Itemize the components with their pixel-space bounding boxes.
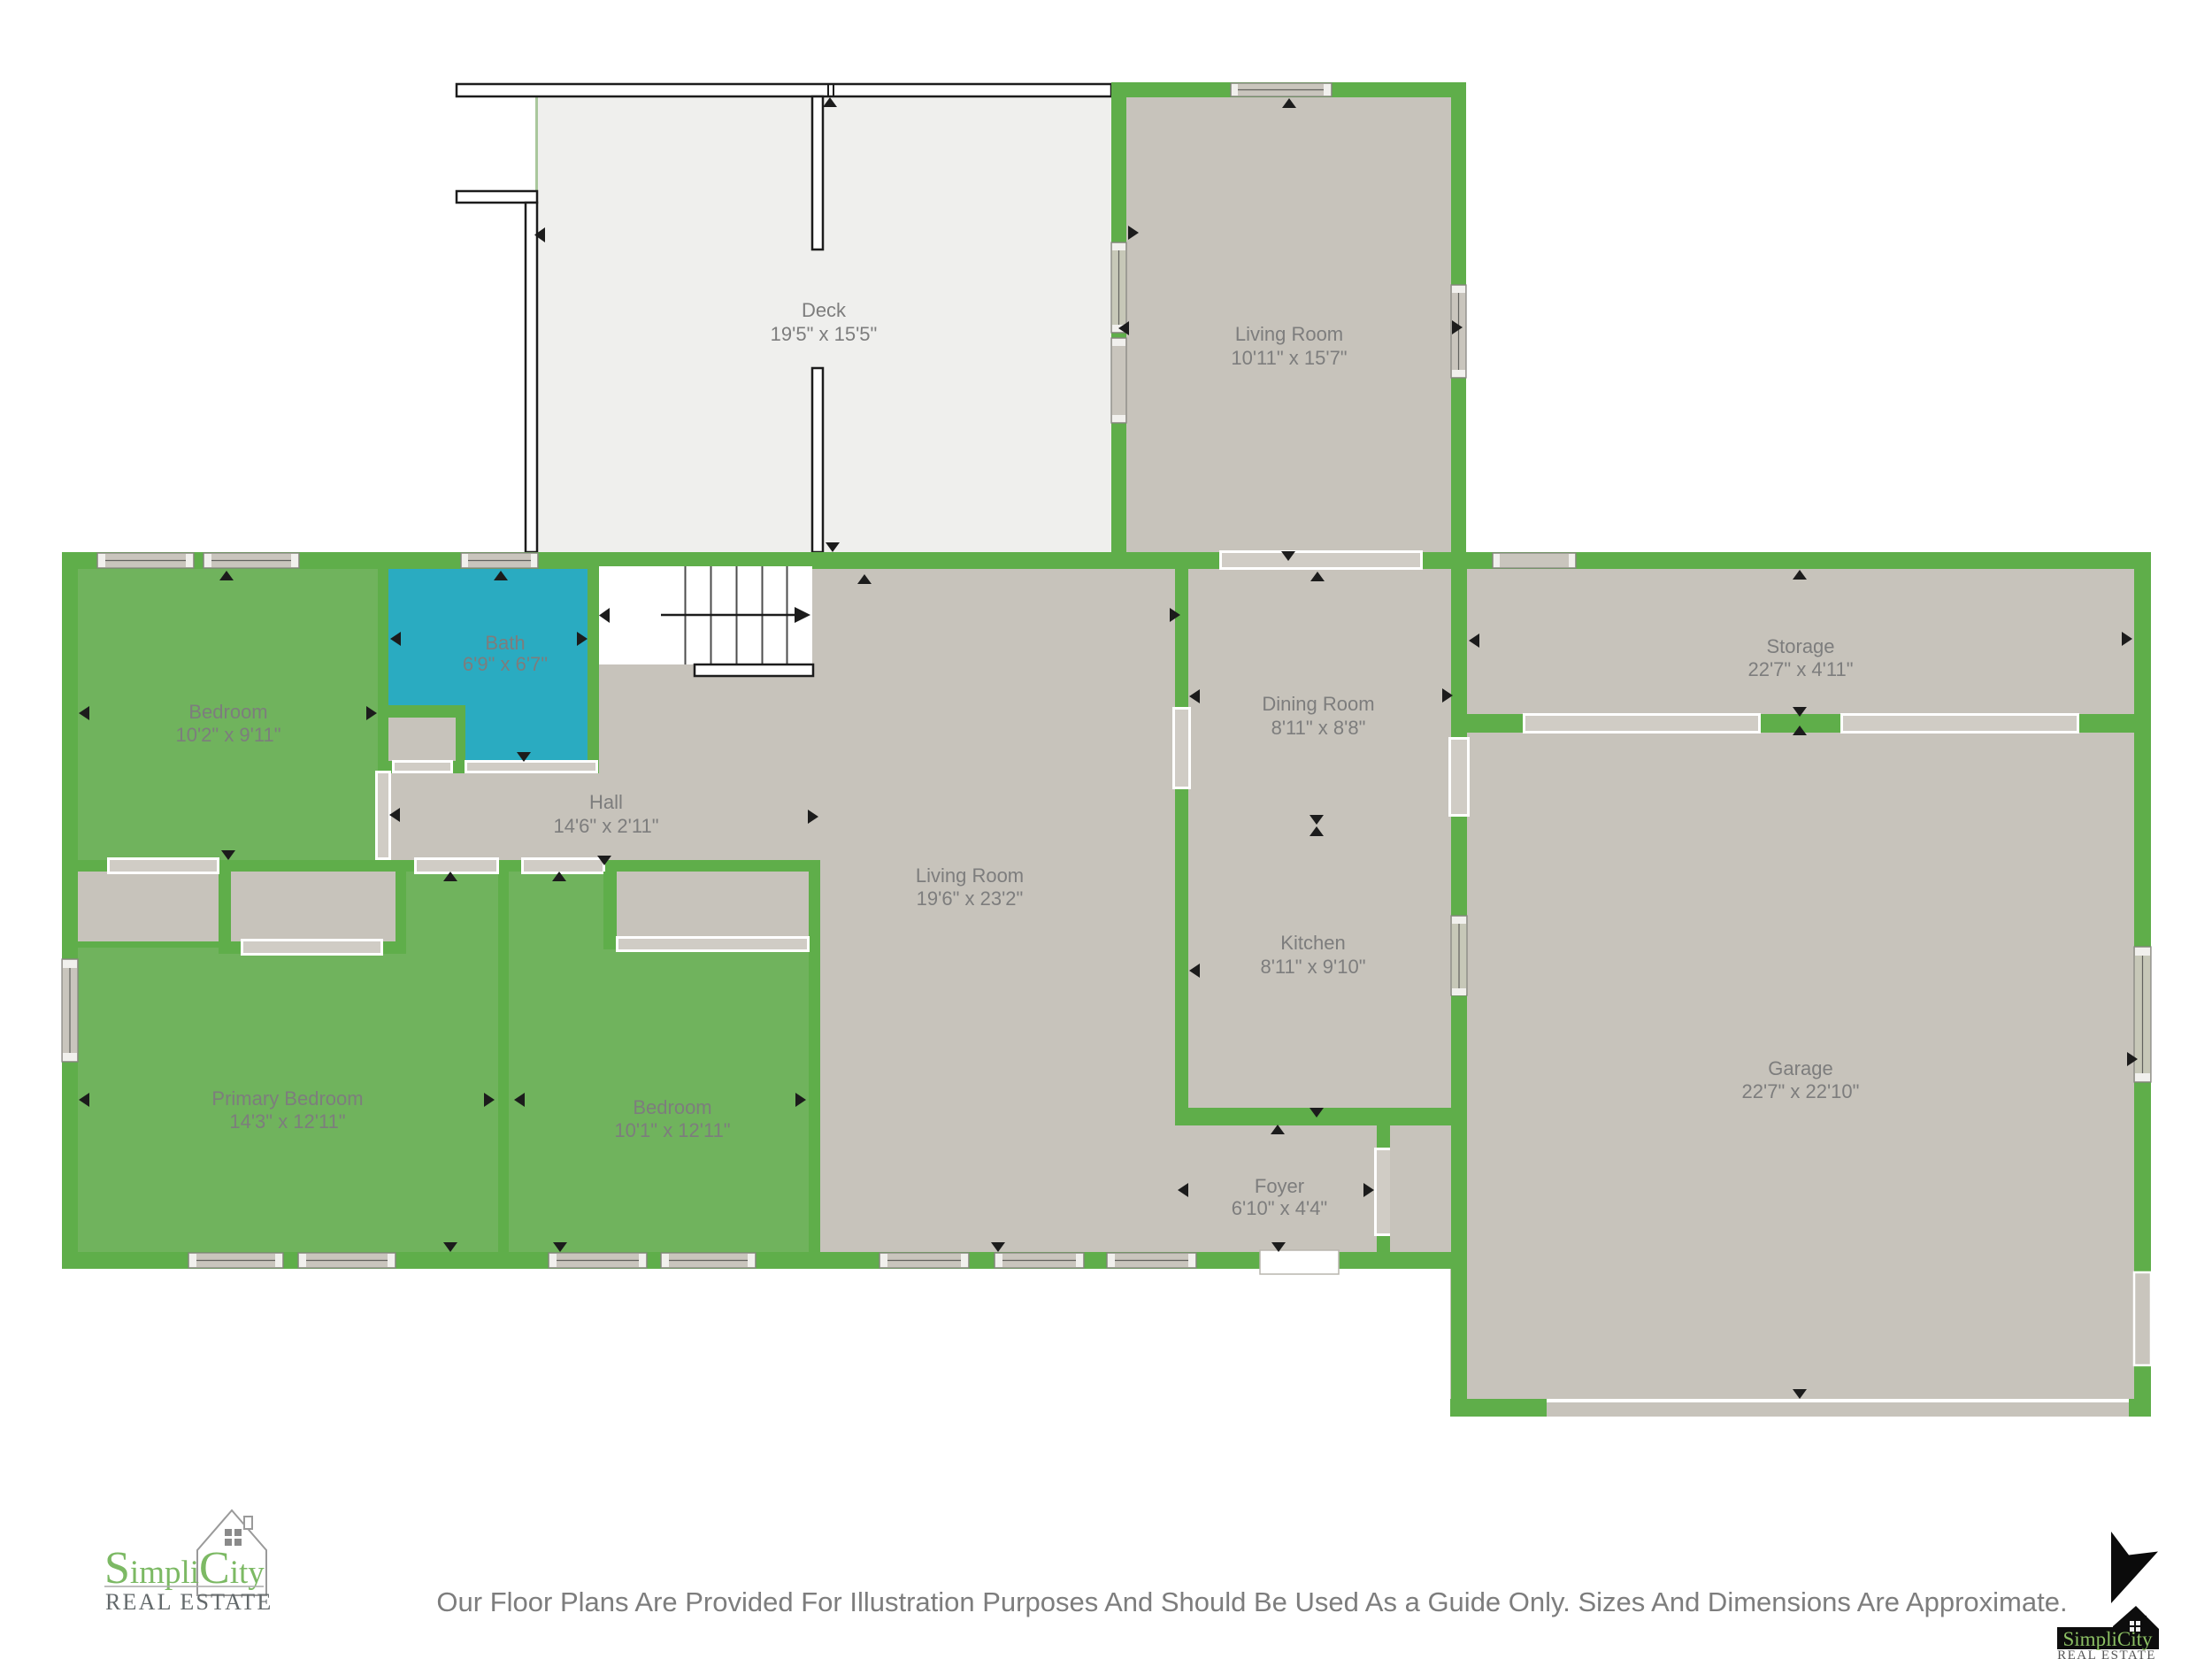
svg-text:REAL ESTATE: REAL ESTATE	[2057, 1648, 2156, 1659]
svg-text:6'9" x 6'7": 6'9" x 6'7"	[463, 653, 548, 675]
svg-text:10'2" x 9'11": 10'2" x 9'11"	[175, 724, 280, 746]
svg-text:Deck: Deck	[802, 299, 847, 321]
svg-text:Kitchen: Kitchen	[1280, 932, 1345, 954]
svg-text:Primary Bedroom: Primary Bedroom	[211, 1087, 363, 1110]
svg-text:SimpliCity: SimpliCity	[2063, 1628, 2153, 1650]
svg-text:Garage: Garage	[1768, 1057, 1832, 1079]
svg-text:Hall: Hall	[589, 791, 623, 813]
svg-text:8'11" x 9'10": 8'11" x 9'10"	[1260, 956, 1365, 978]
svg-text:10'11" x 15'7": 10'11" x 15'7"	[1231, 347, 1347, 369]
svg-text:22'7" x 4'11": 22'7" x 4'11"	[1747, 658, 1853, 680]
svg-text:Bedroom: Bedroom	[633, 1096, 711, 1118]
svg-text:10'1" x 12'11": 10'1" x 12'11"	[614, 1119, 730, 1141]
svg-text:14'6" x 2'11": 14'6" x 2'11"	[553, 815, 658, 837]
svg-text:19'6" x 23'2": 19'6" x 23'2"	[917, 887, 1024, 910]
svg-text:Our Floor Plans Are Provided F: Our Floor Plans Are Provided For Illustr…	[436, 1586, 2067, 1617]
svg-text:Storage: Storage	[1766, 635, 1834, 657]
svg-text:19'5" x 15'5": 19'5" x 15'5"	[771, 323, 878, 345]
svg-text:Bedroom: Bedroom	[188, 701, 267, 723]
svg-text:6'10" x 4'4": 6'10" x 4'4"	[1232, 1197, 1327, 1219]
svg-text:14'3" x 12'11": 14'3" x 12'11"	[229, 1110, 345, 1133]
svg-text:Bath: Bath	[485, 632, 525, 654]
svg-text:REAL ESTATE: REAL ESTATE	[105, 1589, 273, 1615]
svg-text:Living Room: Living Room	[916, 864, 1024, 887]
svg-text:22'7" x 22'10": 22'7" x 22'10"	[1742, 1080, 1860, 1102]
svg-text:8'11" x 8'8": 8'11" x 8'8"	[1271, 717, 1366, 739]
svg-text:Foyer: Foyer	[1255, 1175, 1304, 1197]
svg-text:Dining Room: Dining Room	[1262, 693, 1374, 715]
svg-text:Living Room: Living Room	[1235, 323, 1343, 345]
